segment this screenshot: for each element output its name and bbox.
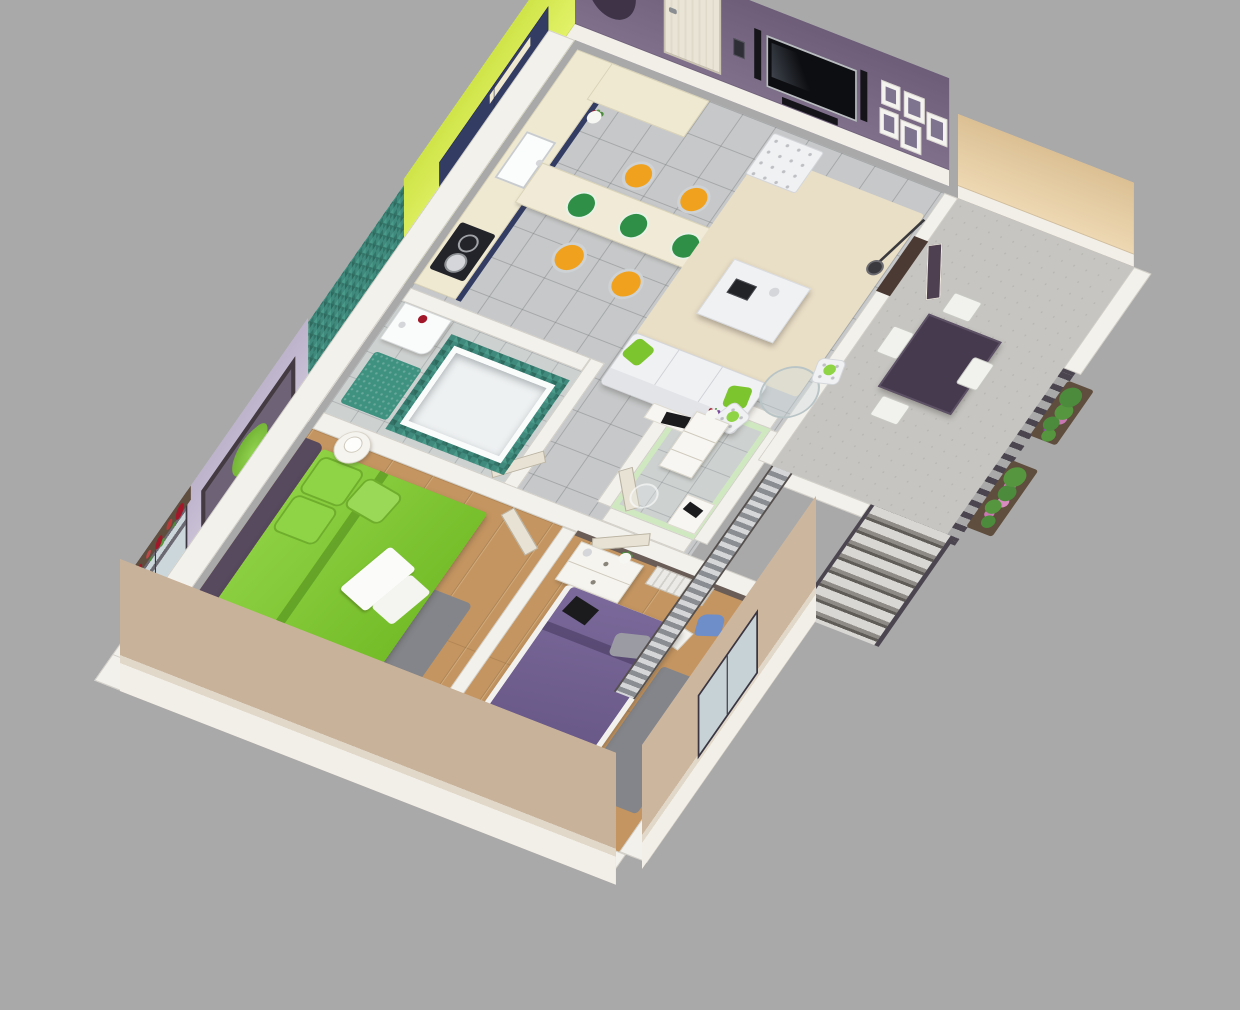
- dresser-knob-icon: [590, 579, 597, 585]
- apartment-3d-floorplan: [0, 0, 1240, 1010]
- sofa-cushion-seam: [698, 367, 723, 402]
- tv-speaker-right: [860, 70, 867, 123]
- cabinet-drawer-seam: [684, 430, 716, 443]
- cabinet-drawer-seam: [671, 449, 703, 462]
- dresser-seam: [568, 561, 629, 586]
- tv-speaker-left: [754, 28, 761, 81]
- balcony-door-leaf: [926, 243, 943, 300]
- dresser-knob-icon: [602, 561, 609, 567]
- window-mullion: [727, 655, 728, 715]
- sofa-cushion-seam: [654, 350, 679, 385]
